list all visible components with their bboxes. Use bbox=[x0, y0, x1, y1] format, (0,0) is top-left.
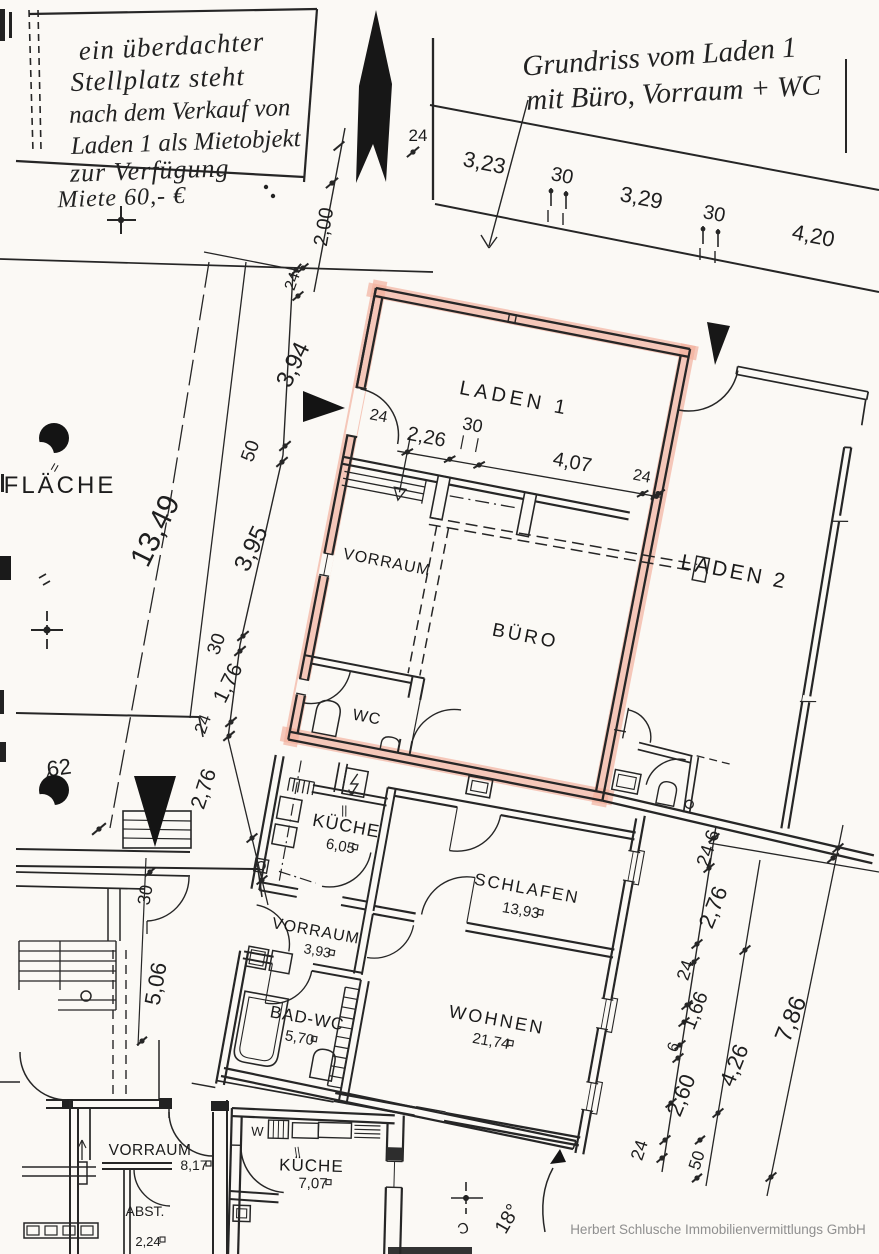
svg-text:24: 24 bbox=[632, 467, 653, 487]
svg-text:ABST.: ABST. bbox=[126, 1203, 165, 1219]
svg-text:VORRAUM: VORRAUM bbox=[109, 1142, 192, 1159]
svg-text:24: 24 bbox=[368, 406, 389, 426]
svg-text:FLÄCHE: FLÄCHE bbox=[4, 472, 117, 499]
svg-text:2,24: 2,24 bbox=[135, 1234, 160, 1249]
svg-text:KÜCHE: KÜCHE bbox=[279, 1155, 344, 1176]
svg-text:8,17: 8,17 bbox=[180, 1157, 207, 1173]
svg-text:30: 30 bbox=[461, 413, 484, 436]
svg-text:Stellplatz steht: Stellplatz steht bbox=[70, 61, 246, 97]
svg-text:24: 24 bbox=[409, 126, 428, 145]
svg-text:Herbert Schlusche Immobilienve: Herbert Schlusche Immobilienvermittlungs… bbox=[570, 1222, 866, 1237]
svg-text:30: 30 bbox=[549, 163, 575, 189]
svg-text:7,07: 7,07 bbox=[298, 1175, 328, 1193]
svg-text:zur Verfügung: zur Verfügung bbox=[68, 153, 230, 188]
svg-text:W: W bbox=[251, 1124, 264, 1139]
svg-text:30: 30 bbox=[701, 201, 727, 227]
